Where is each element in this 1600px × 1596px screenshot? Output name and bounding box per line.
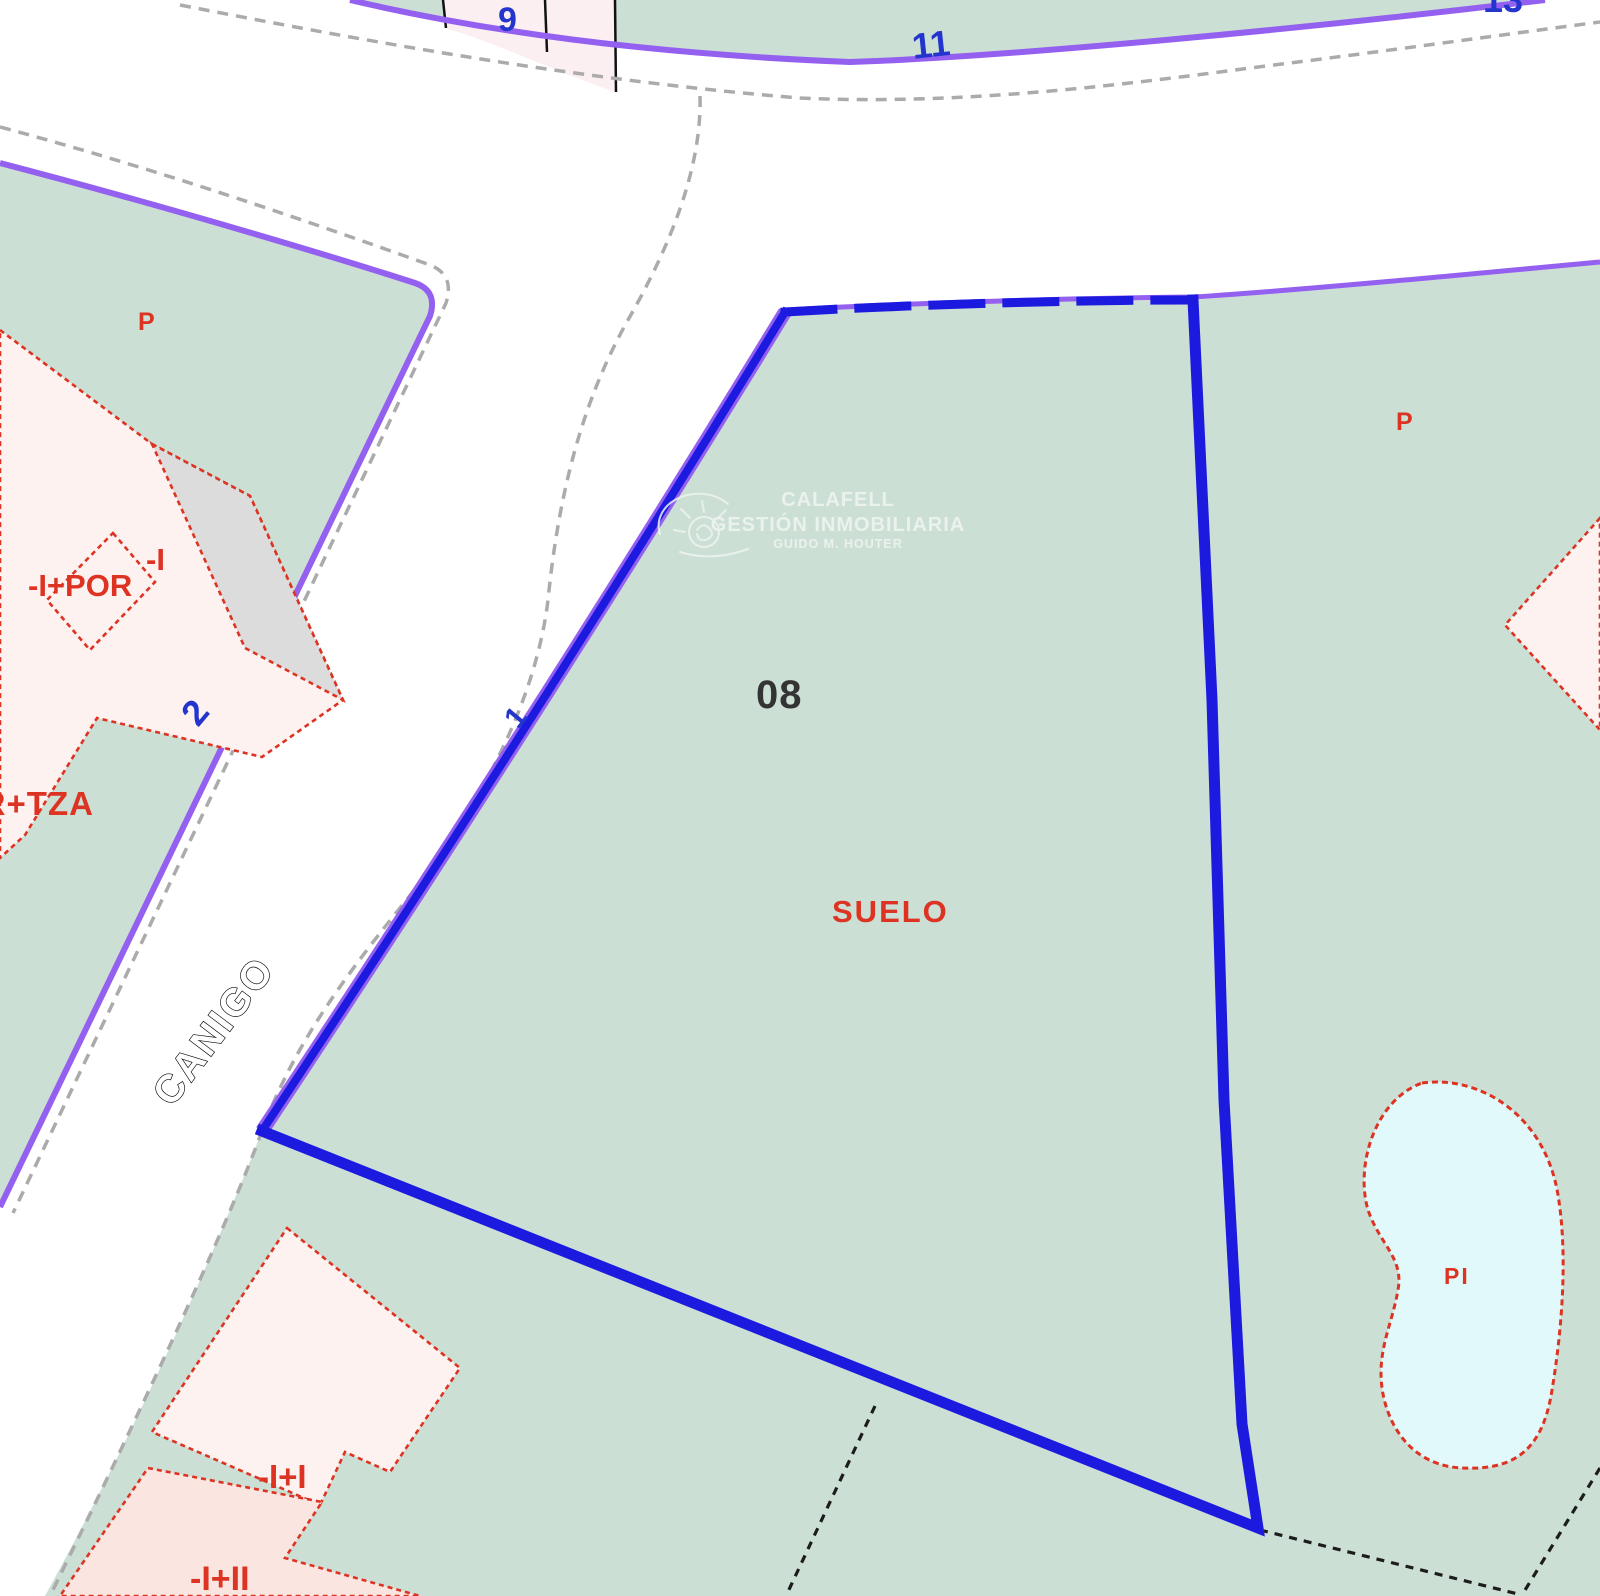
building-left-main-label: -I+POR [28,568,132,603]
watermark-line1: CALAFELL [781,489,895,511]
building-left-small-label: -I [146,542,165,577]
land-use-label: SUELO [832,894,949,929]
building-left-lower-label: POR+TZA [0,785,94,822]
porch-marker-left: P [138,308,155,336]
pool-label: PI [1444,1263,1470,1289]
parcel-number-9: 9 [498,1,517,39]
top-building-9 [443,0,616,92]
parcel-code: 08 [756,673,803,717]
parcel-number-11: 11 [910,22,952,67]
map-canvas[interactable]: 9 11 13 2 1 CANIGO 08 SUELO P P PI -I+PO… [0,0,1600,1596]
parcel-number-13: 13 [1483,0,1523,20]
watermark-line2: GESTIÓN INMOBILIARIA [711,512,965,536]
watermark-line3: GUIDO M. HOUTER [773,537,903,551]
building-bottom-lower-label: -I+II [190,1560,250,1596]
street-name: CANIGO [145,949,284,1114]
building-bottom-upper-label: -I+I [258,1458,307,1495]
porch-marker-right: P [1396,408,1413,436]
